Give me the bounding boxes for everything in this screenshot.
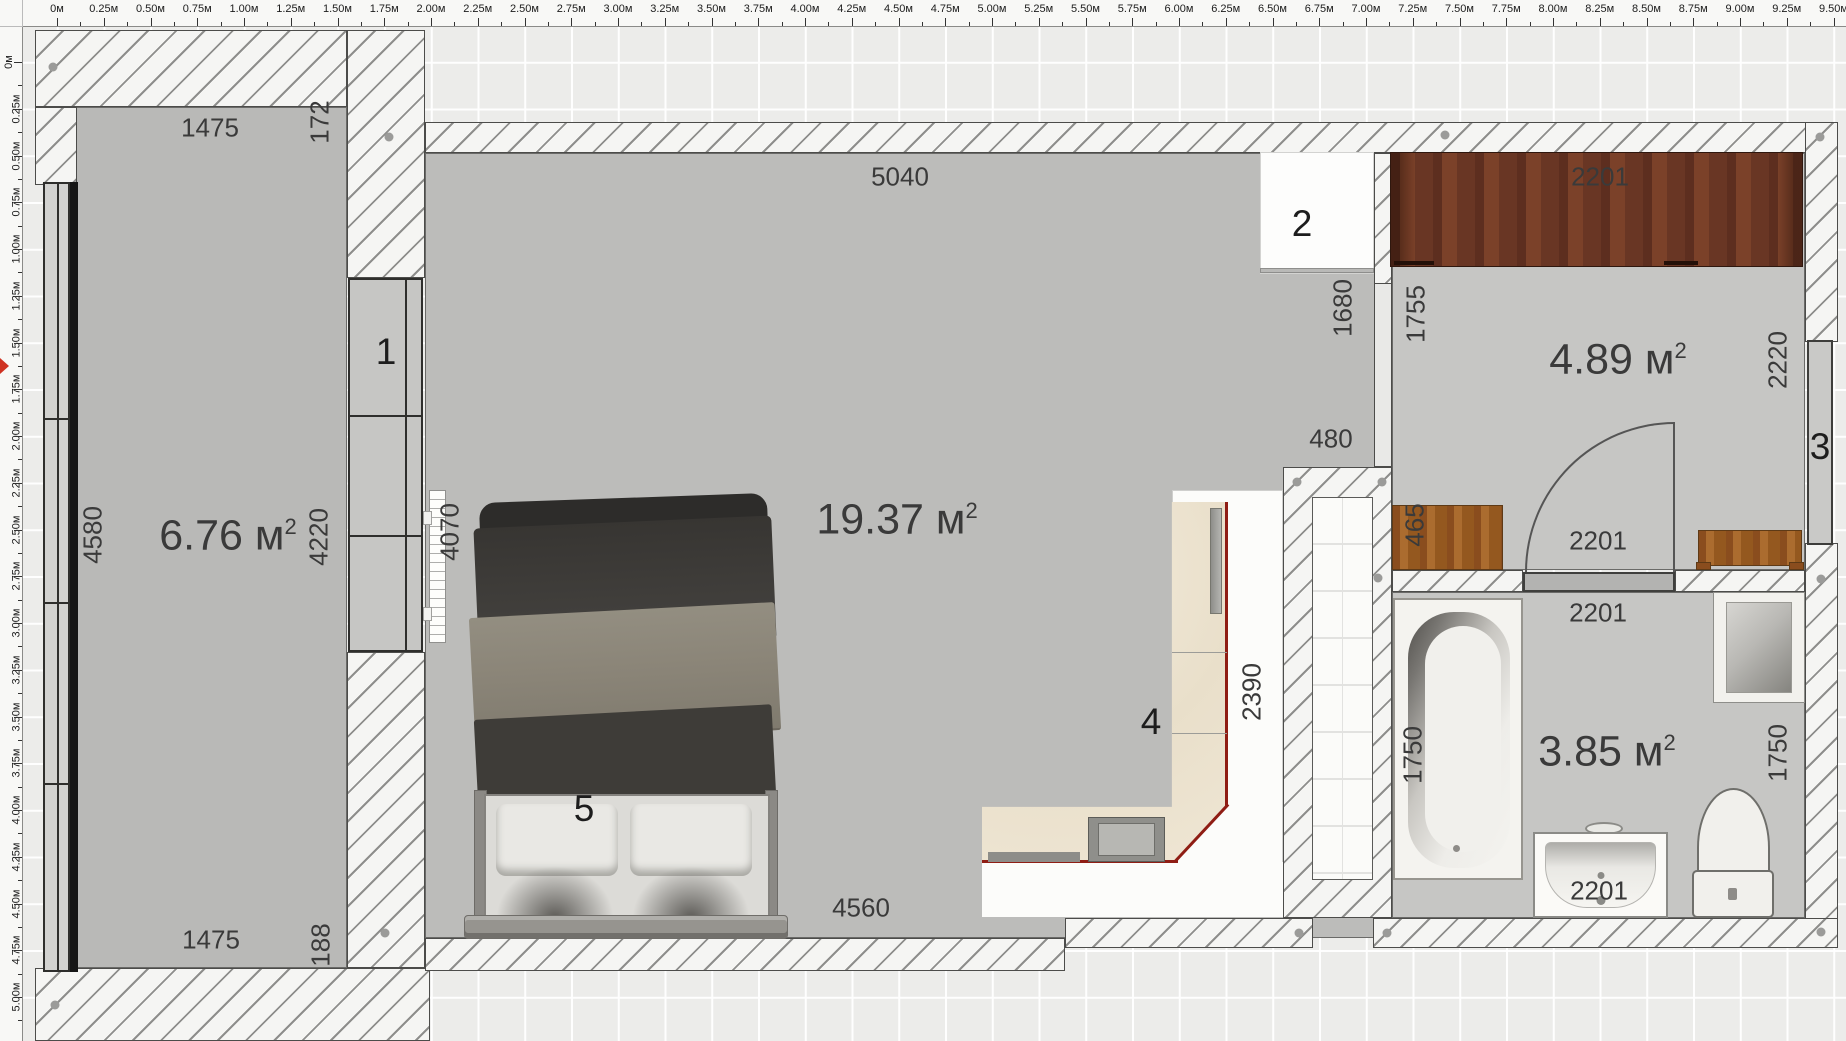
wardrobe[interactable] [1390, 152, 1803, 267]
ruler-tick [1179, 18, 1180, 26]
ruler-tick [151, 18, 152, 26]
ruler-tick [618, 18, 619, 26]
ruler-minor-tick [18, 740, 22, 741]
ruler-label: 7.00м [1352, 3, 1381, 15]
cabinet-left[interactable] [1392, 505, 1503, 570]
ruler-tick [712, 18, 713, 26]
ruler-minor-tick [1436, 22, 1437, 26]
ruler-tick [14, 950, 22, 951]
ruler-minor-tick [1763, 22, 1764, 26]
ruler-tick [571, 18, 572, 26]
ruler-label: 6.50м [1258, 3, 1287, 15]
ruler-label: 2.25м [463, 3, 492, 15]
ruler-minor-tick [1389, 22, 1390, 26]
ruler-label: 0.75м [183, 3, 212, 15]
sink-drain [1596, 896, 1605, 905]
ruler-minor-tick [688, 22, 689, 26]
ruler-tick [1553, 18, 1554, 26]
ruler-minor-tick [1623, 22, 1624, 26]
toilet-flush-button [1728, 888, 1737, 900]
ruler-tick [14, 343, 22, 344]
ruler-label: 2.00м [417, 3, 446, 15]
ruler-label: 7.75м [1492, 3, 1521, 15]
ruler-minor-tick [1109, 22, 1110, 26]
ruler-minor-tick [875, 22, 876, 26]
ruler-tick [14, 156, 22, 157]
ruler-minor-tick [1670, 22, 1671, 26]
bathroom-sink[interactable] [1533, 832, 1668, 918]
ruler-tick [1273, 18, 1274, 26]
ruler-minor-tick [595, 22, 596, 26]
bed-footboard [464, 915, 788, 939]
ruler-minor-tick [18, 787, 22, 788]
ruler-tick [14, 717, 22, 718]
ruler-minor-tick [1810, 22, 1811, 26]
wall-corner-dot [385, 133, 394, 142]
wall-corner-dot [1378, 478, 1387, 487]
ruler-label: 3.25м [650, 3, 679, 15]
counter-divider [1172, 733, 1227, 734]
ruler-minor-tick [1483, 22, 1484, 26]
door-2-leaf [1260, 268, 1374, 273]
ruler-label: 8.25м [1585, 3, 1614, 15]
ruler-label: 1.25м [276, 3, 305, 15]
counter-wall-shelf[interactable] [1210, 508, 1222, 614]
kitchen-sink[interactable] [1088, 817, 1165, 862]
ruler-minor-tick [1343, 22, 1344, 26]
ruler-label: 3.00м [604, 3, 633, 15]
ruler-tick [14, 530, 22, 531]
ruler-label: 0.25м [89, 3, 118, 15]
ruler-tick [14, 810, 22, 811]
ruler-tick [14, 576, 22, 577]
ruler-tick [758, 18, 759, 26]
balcony-window-sill [70, 182, 78, 972]
ruler-tick [1647, 18, 1648, 26]
ruler-minor-tick [18, 413, 22, 414]
bathroom-door[interactable] [1523, 572, 1675, 592]
ruler-label: 4.50м [884, 3, 913, 15]
ruler-label: 0м [50, 3, 64, 15]
ruler-tick [14, 389, 22, 390]
ruler-minor-tick [1530, 22, 1531, 26]
ruler-minor-tick [18, 132, 22, 133]
ruler-tick [478, 18, 479, 26]
wall-corner-dot [1383, 929, 1392, 938]
ruler-label: 7.25м [1398, 3, 1427, 15]
ruler-tick [525, 18, 526, 26]
ruler-minor-tick [18, 85, 22, 86]
ruler-minor-tick [1249, 22, 1250, 26]
ruler-minor-tick [18, 319, 22, 320]
ruler-label: 1.50м [323, 3, 352, 15]
window-divider [350, 535, 421, 537]
balcony-block-window-1[interactable] [348, 278, 423, 652]
ruler-tick [1366, 18, 1367, 26]
ruler-minor-tick [221, 22, 222, 26]
ruler-label: 2.50м [510, 3, 539, 15]
counter-edge [1225, 502, 1228, 807]
ruler-tick [14, 997, 22, 998]
ruler-minor-tick [922, 22, 923, 26]
ruler-tick [14, 436, 22, 437]
ruler-tick [14, 670, 22, 671]
radiator-bracket [423, 607, 432, 621]
ruler-label: 1.75м [370, 3, 399, 15]
wall-corner-dot [1295, 929, 1304, 938]
ruler-tick [1039, 18, 1040, 26]
door-leaf-line [1673, 422, 1675, 572]
ruler-label: 9.50м [1819, 3, 1846, 15]
wall-corner-dot [49, 63, 58, 72]
washing-machine[interactable] [1713, 592, 1805, 703]
counter-divider [1172, 652, 1227, 653]
ruler-minor-tick [18, 693, 22, 694]
ruler-minor-tick [18, 506, 22, 507]
ruler-horizontal[interactable]: 0м0.25м0.50м0.75м1.00м1.25м1.50м1.75м2.0… [22, 0, 1846, 27]
balcony-side-window[interactable] [43, 182, 70, 972]
window-divider [45, 783, 68, 785]
ruler-minor-tick [1576, 22, 1577, 26]
ruler-minor-tick [18, 880, 22, 881]
ruler-tick [1506, 18, 1507, 26]
ruler-tick [1787, 18, 1788, 26]
ruler-cursor-marker [0, 358, 9, 374]
ruler-minor-tick [501, 22, 502, 26]
ruler-tick [244, 18, 245, 26]
ruler-label: 5.00м [978, 3, 1007, 15]
ruler-label: 6.75м [1305, 3, 1334, 15]
ruler-tick [384, 18, 385, 26]
radiator-bracket [423, 511, 432, 525]
ruler-minor-tick [454, 22, 455, 26]
ruler-tick [1319, 18, 1320, 26]
ruler-tick [1460, 18, 1461, 26]
ruler-tick [14, 623, 22, 624]
ruler-tick [1132, 18, 1133, 26]
door-opening-2[interactable] [1260, 152, 1374, 274]
ruler-label: 5.25м [1024, 3, 1053, 15]
ruler-tick [197, 18, 198, 26]
bed-mattress [484, 794, 770, 920]
ruler-minor-tick [174, 22, 175, 26]
ruler-tick [338, 18, 339, 26]
ruler-minor-tick [548, 22, 549, 26]
ruler-tick [1600, 18, 1601, 26]
bed[interactable] [472, 498, 778, 938]
ruler-minor-tick [18, 226, 22, 227]
ruler-minor-tick [18, 833, 22, 834]
ruler-tick [14, 62, 22, 63]
ruler-minor-tick [18, 1020, 22, 1021]
ruler-minor-tick [18, 600, 22, 601]
ruler-tick [14, 483, 22, 484]
wall-corner-dot [381, 929, 390, 938]
wall-corner-dot [1441, 131, 1450, 140]
ruler-label: 2.75м [557, 3, 586, 15]
ruler-minor-tick [1202, 22, 1203, 26]
bed-shadow [632, 866, 750, 918]
ruler-label: 7.50м [1445, 3, 1474, 15]
ruler-label: 8.75м [1679, 3, 1708, 15]
plan-canvas[interactable]: 0м0.25м0.50м0.75м1.00м1.25м1.50м1.75м2.0… [0, 0, 1846, 1041]
ruler-tick [14, 202, 22, 203]
ruler-minor-tick [18, 974, 22, 975]
bed-shadow [496, 866, 614, 918]
ruler-tick [431, 18, 432, 26]
wardrobe-handle [1664, 261, 1698, 265]
wall-corner-dot [1817, 928, 1826, 937]
bathtub-drain [1453, 845, 1460, 852]
ruler-label: 4.00м [791, 3, 820, 15]
ruler-minor-tick [361, 22, 362, 26]
window-mullion [405, 280, 407, 650]
ruler-label: 3.75м [744, 3, 773, 15]
ruler-minor-tick [18, 553, 22, 554]
ruler-tick [1413, 18, 1414, 26]
window-divider [45, 602, 68, 604]
window-divider [350, 415, 421, 417]
cabinet-foot [1789, 562, 1804, 570]
ruler-minor-tick [80, 22, 81, 26]
ruler-minor-tick [267, 22, 268, 26]
ruler-label: 5.75м [1118, 3, 1147, 15]
ruler-minor-tick [641, 22, 642, 26]
ruler-tick [992, 18, 993, 26]
ruler-label: 3.50м [697, 3, 726, 15]
appliance-front [988, 852, 1080, 862]
bathtub-basin [1425, 626, 1501, 852]
ruler-label: 6.00м [1165, 3, 1194, 15]
ruler-minor-tick [18, 927, 22, 928]
ruler-label: 0.50м [136, 3, 165, 15]
ruler-label: 8.00м [1539, 3, 1568, 15]
ruler-tick [14, 296, 22, 297]
ruler-label: 4.75м [931, 3, 960, 15]
ruler-minor-tick [1156, 22, 1157, 26]
sink-basin [1098, 823, 1155, 856]
ruler-label: 9.00м [1726, 3, 1755, 15]
radiator[interactable] [429, 490, 446, 643]
wall-corner-dot [1817, 575, 1826, 584]
ruler-label: 4.25м [837, 3, 866, 15]
wall-corner-dot [1374, 574, 1383, 583]
ruler-tick [57, 18, 58, 26]
ruler-tick [852, 18, 853, 26]
ruler-tick [14, 763, 22, 764]
ruler-tick [805, 18, 806, 26]
ruler-minor-tick [782, 22, 783, 26]
ruler-tick [1226, 18, 1227, 26]
ruler-label: 8.50м [1632, 3, 1661, 15]
ruler-tick [1834, 18, 1835, 26]
ruler-minor-tick [18, 459, 22, 460]
bathtub[interactable] [1393, 598, 1523, 880]
ruler-tick [1693, 18, 1694, 26]
window-3[interactable] [1807, 340, 1833, 545]
ruler-minor-tick [1015, 22, 1016, 26]
wall-corner-dot [1816, 133, 1825, 142]
ruler-tick [899, 18, 900, 26]
wardrobe-handle [1394, 261, 1434, 265]
sink-drain [1597, 872, 1604, 879]
wall-corner-dot [1293, 478, 1302, 487]
ruler-minor-tick [18, 272, 22, 273]
ruler-minor-tick [969, 22, 970, 26]
ruler-label: 5.50м [1071, 3, 1100, 15]
ruler-label: 9.25м [1772, 3, 1801, 15]
window-divider [45, 418, 68, 420]
ruler-tick [1740, 18, 1741, 26]
cabinet-foot [1696, 562, 1711, 570]
ruler-tick [104, 18, 105, 26]
toilet-tank[interactable] [1692, 870, 1774, 918]
ruler-minor-tick [314, 22, 315, 26]
ruler-corner [0, 0, 23, 27]
ruler-minor-tick [18, 366, 22, 367]
ruler-minor-tick [18, 646, 22, 647]
wall-corner-dot [51, 1001, 60, 1010]
ruler-tick [291, 18, 292, 26]
ruler-minor-tick [1062, 22, 1063, 26]
ruler-tick [1086, 18, 1087, 26]
ruler-minor-tick [408, 22, 409, 26]
ruler-minor-tick [735, 22, 736, 26]
ruler-label: 1.00м [230, 3, 259, 15]
ruler-tick [14, 904, 22, 905]
ruler-tick [14, 857, 22, 858]
ruler-tick [14, 249, 22, 250]
ruler-vertical[interactable]: 0м0.25м0.50м0.75м1.00м1.25м1.50м1.75м2.0… [0, 26, 23, 1041]
ruler-tick [665, 18, 666, 26]
washing-machine-top [1726, 602, 1792, 693]
ruler-tick [14, 109, 22, 110]
window-mullion [57, 184, 59, 970]
ruler-tick [945, 18, 946, 26]
ruler-minor-tick [828, 22, 829, 26]
ruler-minor-tick [18, 179, 22, 180]
ruler-minor-tick [1296, 22, 1297, 26]
ruler-minor-tick [127, 22, 128, 26]
ruler-minor-tick [1717, 22, 1718, 26]
ruler-label: 6.25м [1211, 3, 1240, 15]
cabinet-right[interactable] [1698, 530, 1802, 566]
